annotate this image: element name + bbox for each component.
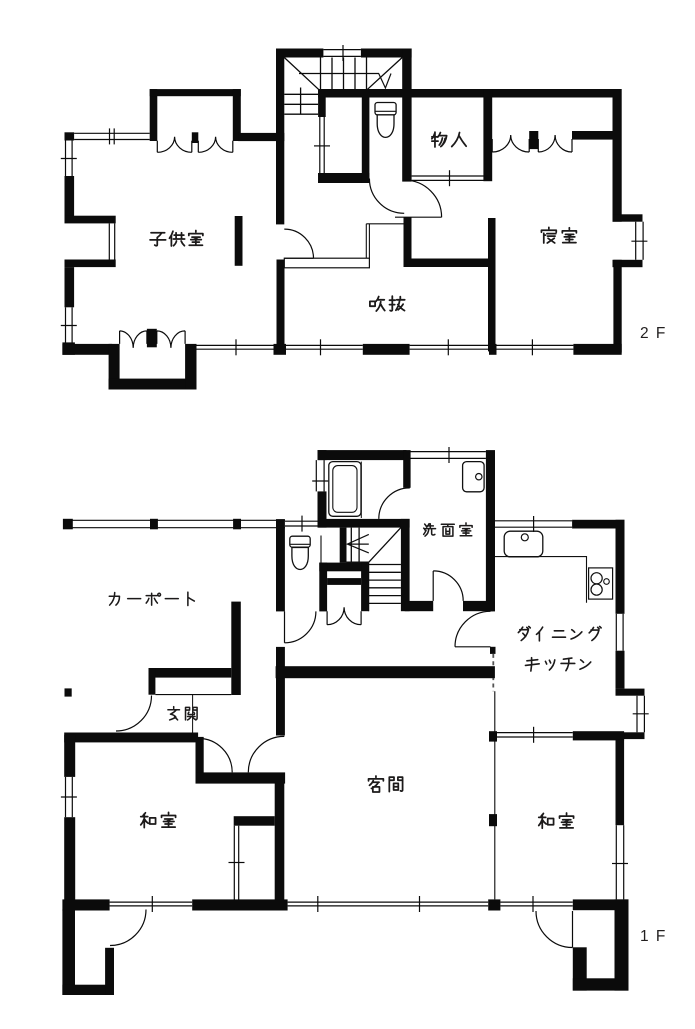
svg-text:2 F: 2 F (640, 325, 667, 342)
svg-text:1 F: 1 F (640, 928, 667, 945)
